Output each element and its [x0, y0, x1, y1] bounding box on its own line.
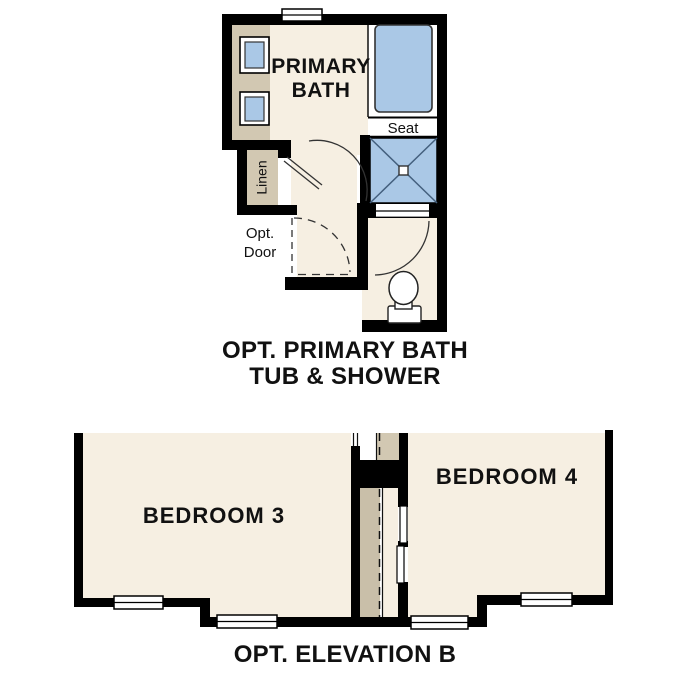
bedroom4-window-2 — [521, 593, 572, 606]
toilet-symbol — [388, 272, 421, 324]
bath-window — [282, 9, 322, 21]
bedroom3-label: BEDROOM 3 — [64, 504, 364, 528]
primary-bath-label: PRIMARY BATH — [246, 55, 396, 103]
bedroom4-window-1 — [411, 616, 468, 629]
chase-strip-upper — [377, 433, 399, 460]
linen-label: Linen — [254, 148, 271, 208]
shower-drain-icon — [399, 166, 408, 175]
shower-symbol — [370, 138, 438, 204]
bedroom3-window-1 — [114, 596, 163, 609]
elevation-plan-caption: OPT. ELEVATION B — [45, 642, 645, 668]
opt-door-label: Opt. Door — [210, 224, 310, 262]
floorplan-page: PRIMARY BATH Seat Linen Opt. Door OPT. P… — [0, 0, 687, 687]
elevation-b-plan — [74, 430, 613, 629]
bedroom3-window-2 — [217, 615, 277, 628]
bedroom4-label: BEDROOM 4 — [357, 465, 657, 489]
seat-label: Seat — [368, 119, 438, 138]
bath-plan-caption: OPT. PRIMARY BATH TUB & SHOWER — [45, 338, 645, 390]
